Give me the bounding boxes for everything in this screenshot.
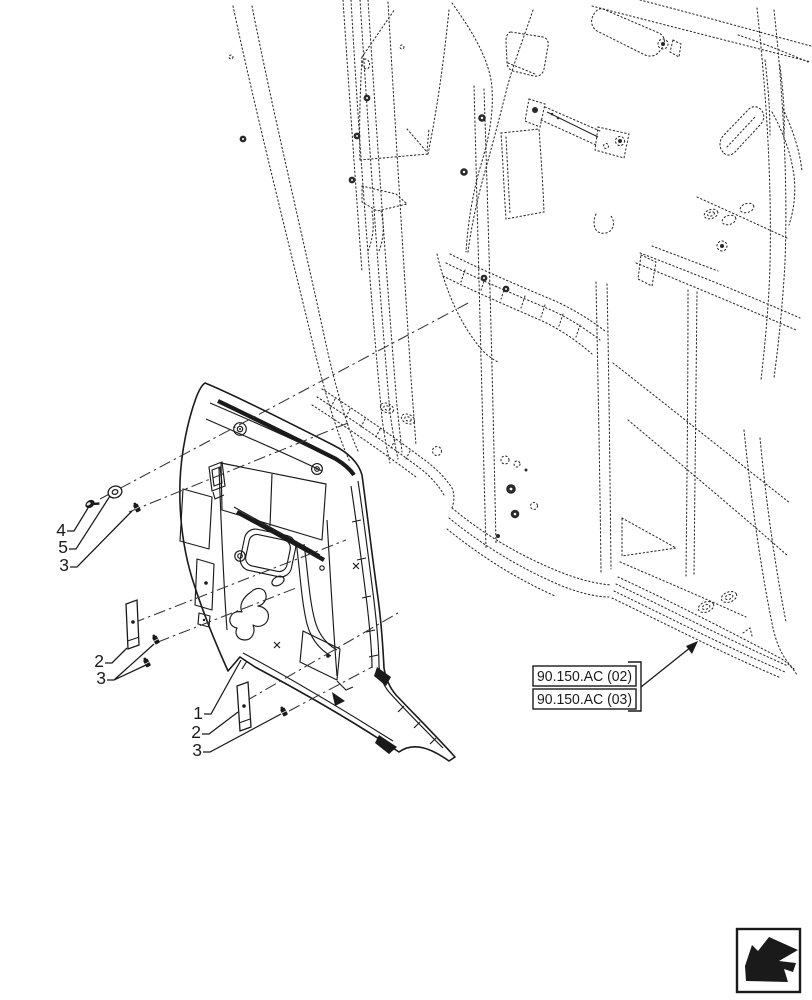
callout-1: 1 bbox=[193, 703, 203, 723]
callout-3-upper: 3 bbox=[59, 555, 69, 575]
cab-phantom-drawing bbox=[229, 0, 811, 678]
exploded-parts-diagram: 4 5 3 2 3 1 2 3 90.150.AC (02) 90.150.AC… bbox=[0, 0, 812, 1000]
pad-part-2b bbox=[237, 682, 251, 731]
front-panel-part bbox=[180, 383, 455, 761]
page-direction-arrow-icon bbox=[737, 929, 800, 992]
clip-part-3b bbox=[151, 634, 160, 645]
panel-outline bbox=[180, 383, 455, 761]
reference-links: 90.150.AC (02) 90.150.AC (03) bbox=[533, 641, 698, 711]
screw-part-4 bbox=[84, 496, 100, 511]
pad-part-2a bbox=[126, 600, 139, 649]
reference-label-1: 90.150.AC (02) bbox=[537, 669, 632, 685]
clip-part-3d bbox=[279, 706, 288, 717]
projection-centerlines bbox=[100, 302, 470, 711]
callout-3-low: 3 bbox=[192, 740, 202, 760]
callout-2-low: 2 bbox=[191, 722, 201, 742]
parts-diagram-page: 4 5 3 2 3 1 2 3 90.150.AC (02) 90.150.AC… bbox=[0, 0, 812, 1000]
reference-label-2: 90.150.AC (03) bbox=[537, 692, 632, 708]
reference-leader bbox=[641, 647, 691, 687]
reference-arrowhead bbox=[686, 641, 698, 654]
callout-5: 5 bbox=[58, 537, 68, 557]
callout-3-mid: 3 bbox=[96, 668, 106, 688]
